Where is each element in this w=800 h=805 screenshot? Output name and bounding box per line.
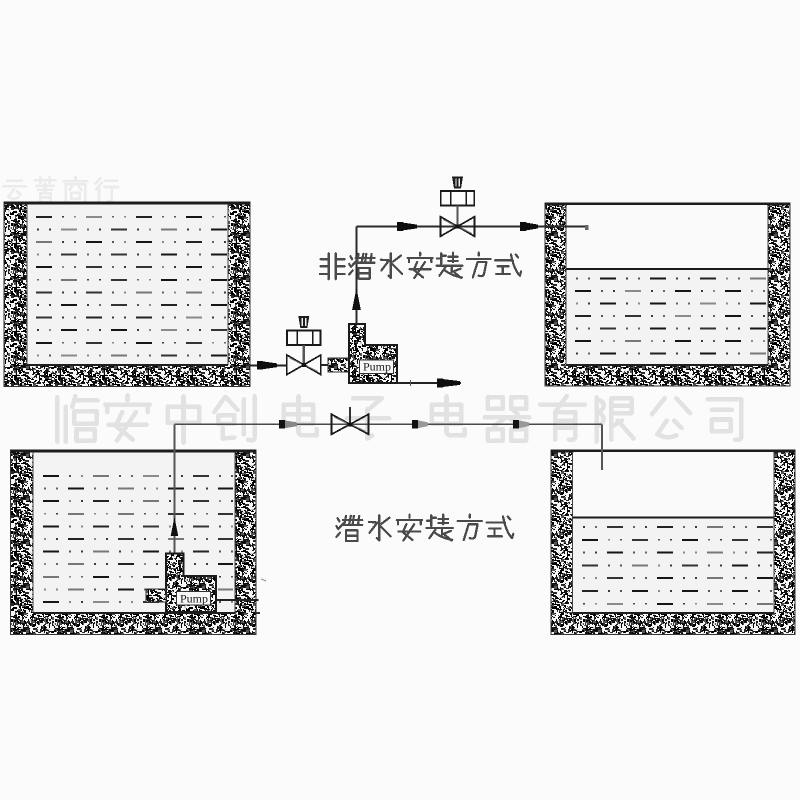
svg-text:Pump: Pump xyxy=(180,591,208,605)
svg-text:Pump: Pump xyxy=(363,360,391,374)
